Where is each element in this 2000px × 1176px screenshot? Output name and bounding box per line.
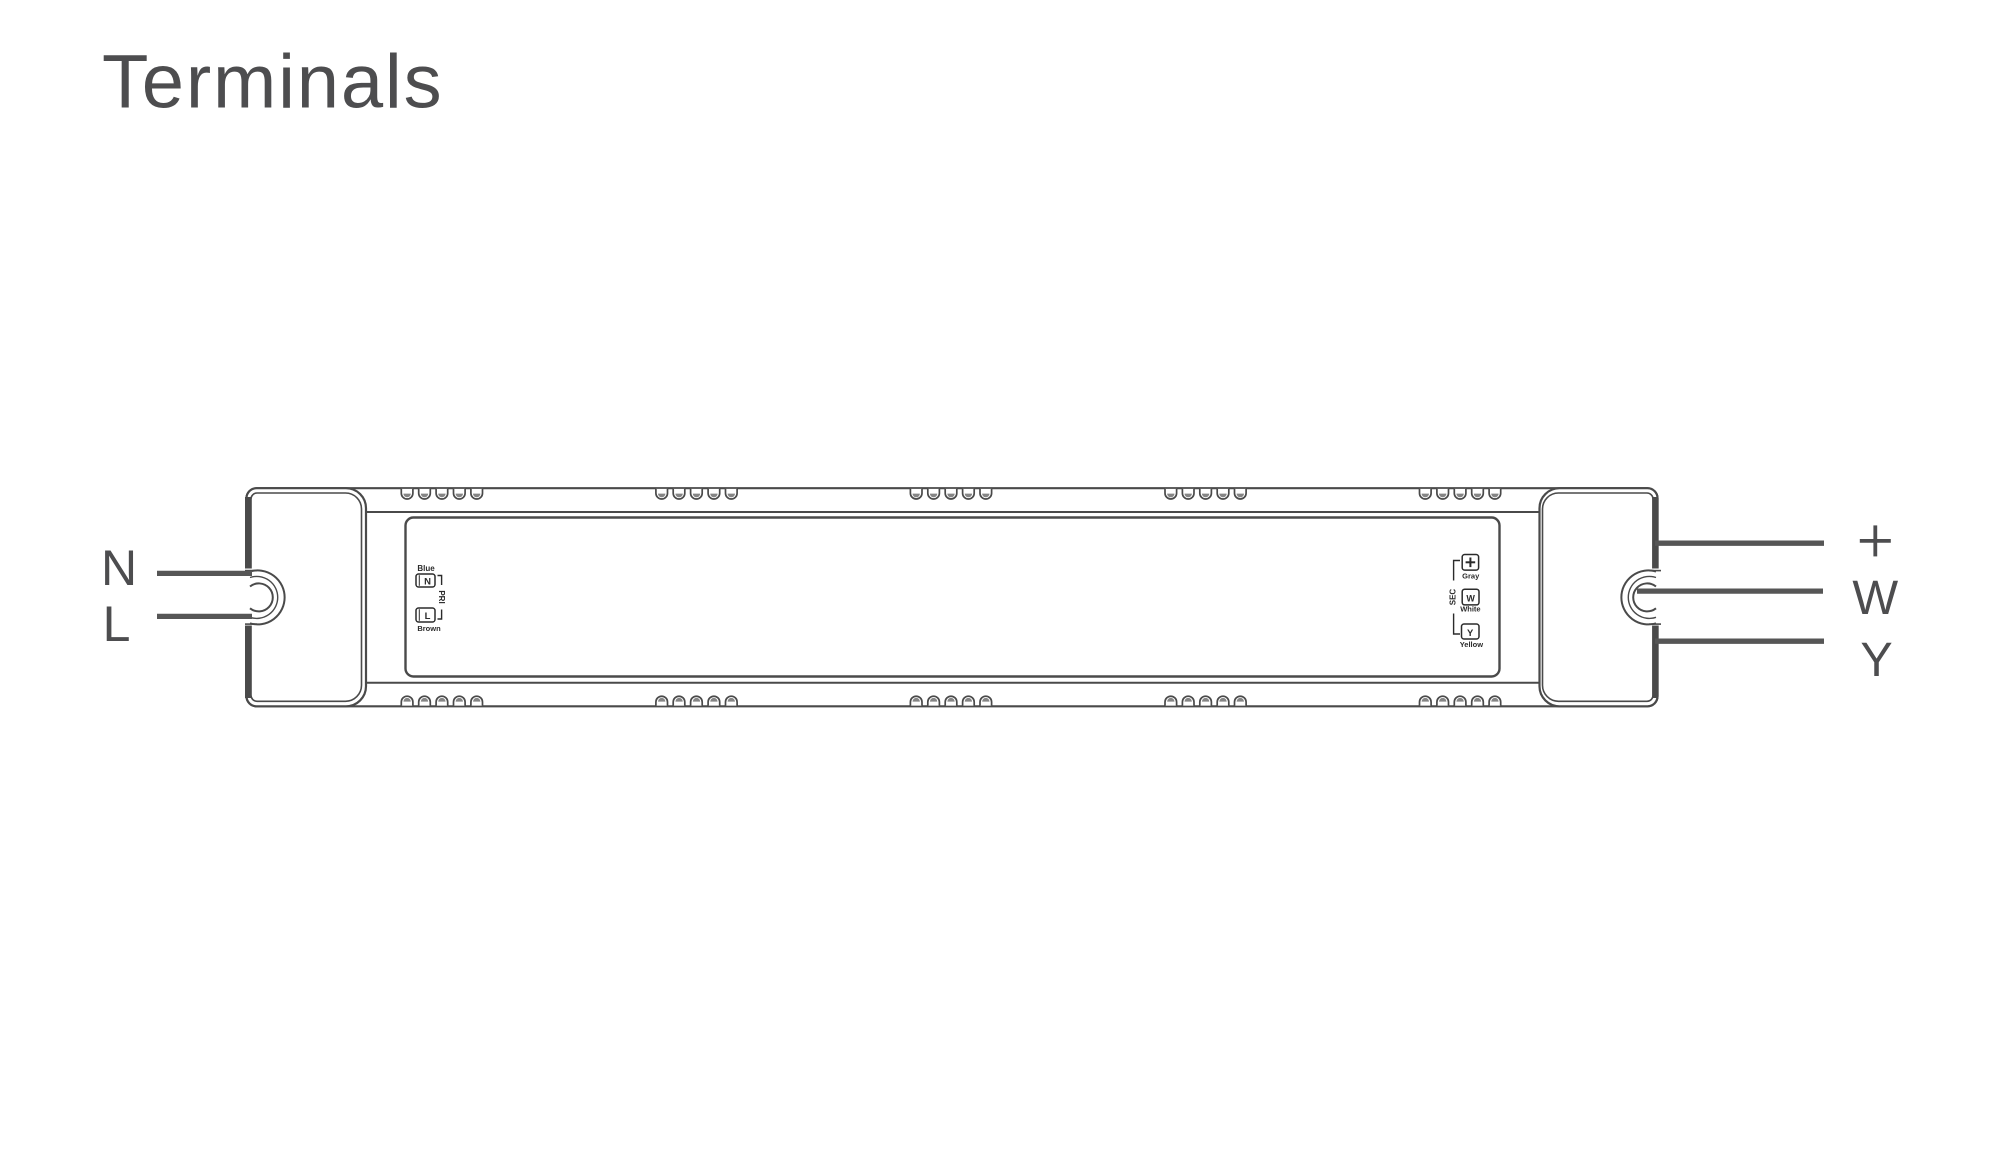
svg-text:W: W (1852, 571, 1898, 625)
svg-text:SEC: SEC (1449, 589, 1458, 606)
svg-text:W: W (1466, 594, 1475, 604)
svg-text:White: White (1460, 605, 1480, 614)
svg-text:Yellow: Yellow (1460, 640, 1484, 649)
svg-text:Y: Y (1860, 633, 1892, 687)
svg-text:Blue: Blue (417, 564, 435, 573)
svg-text:Terminals: Terminals (102, 40, 443, 125)
svg-text:L: L (103, 596, 131, 652)
svg-text:L: L (425, 611, 431, 622)
svg-text:Y: Y (1467, 628, 1474, 639)
svg-text:N: N (101, 540, 137, 596)
svg-text:Gray: Gray (1462, 572, 1480, 581)
svg-text:N: N (424, 576, 431, 587)
svg-text:PRI: PRI (437, 590, 446, 603)
svg-text:Brown: Brown (417, 624, 441, 633)
